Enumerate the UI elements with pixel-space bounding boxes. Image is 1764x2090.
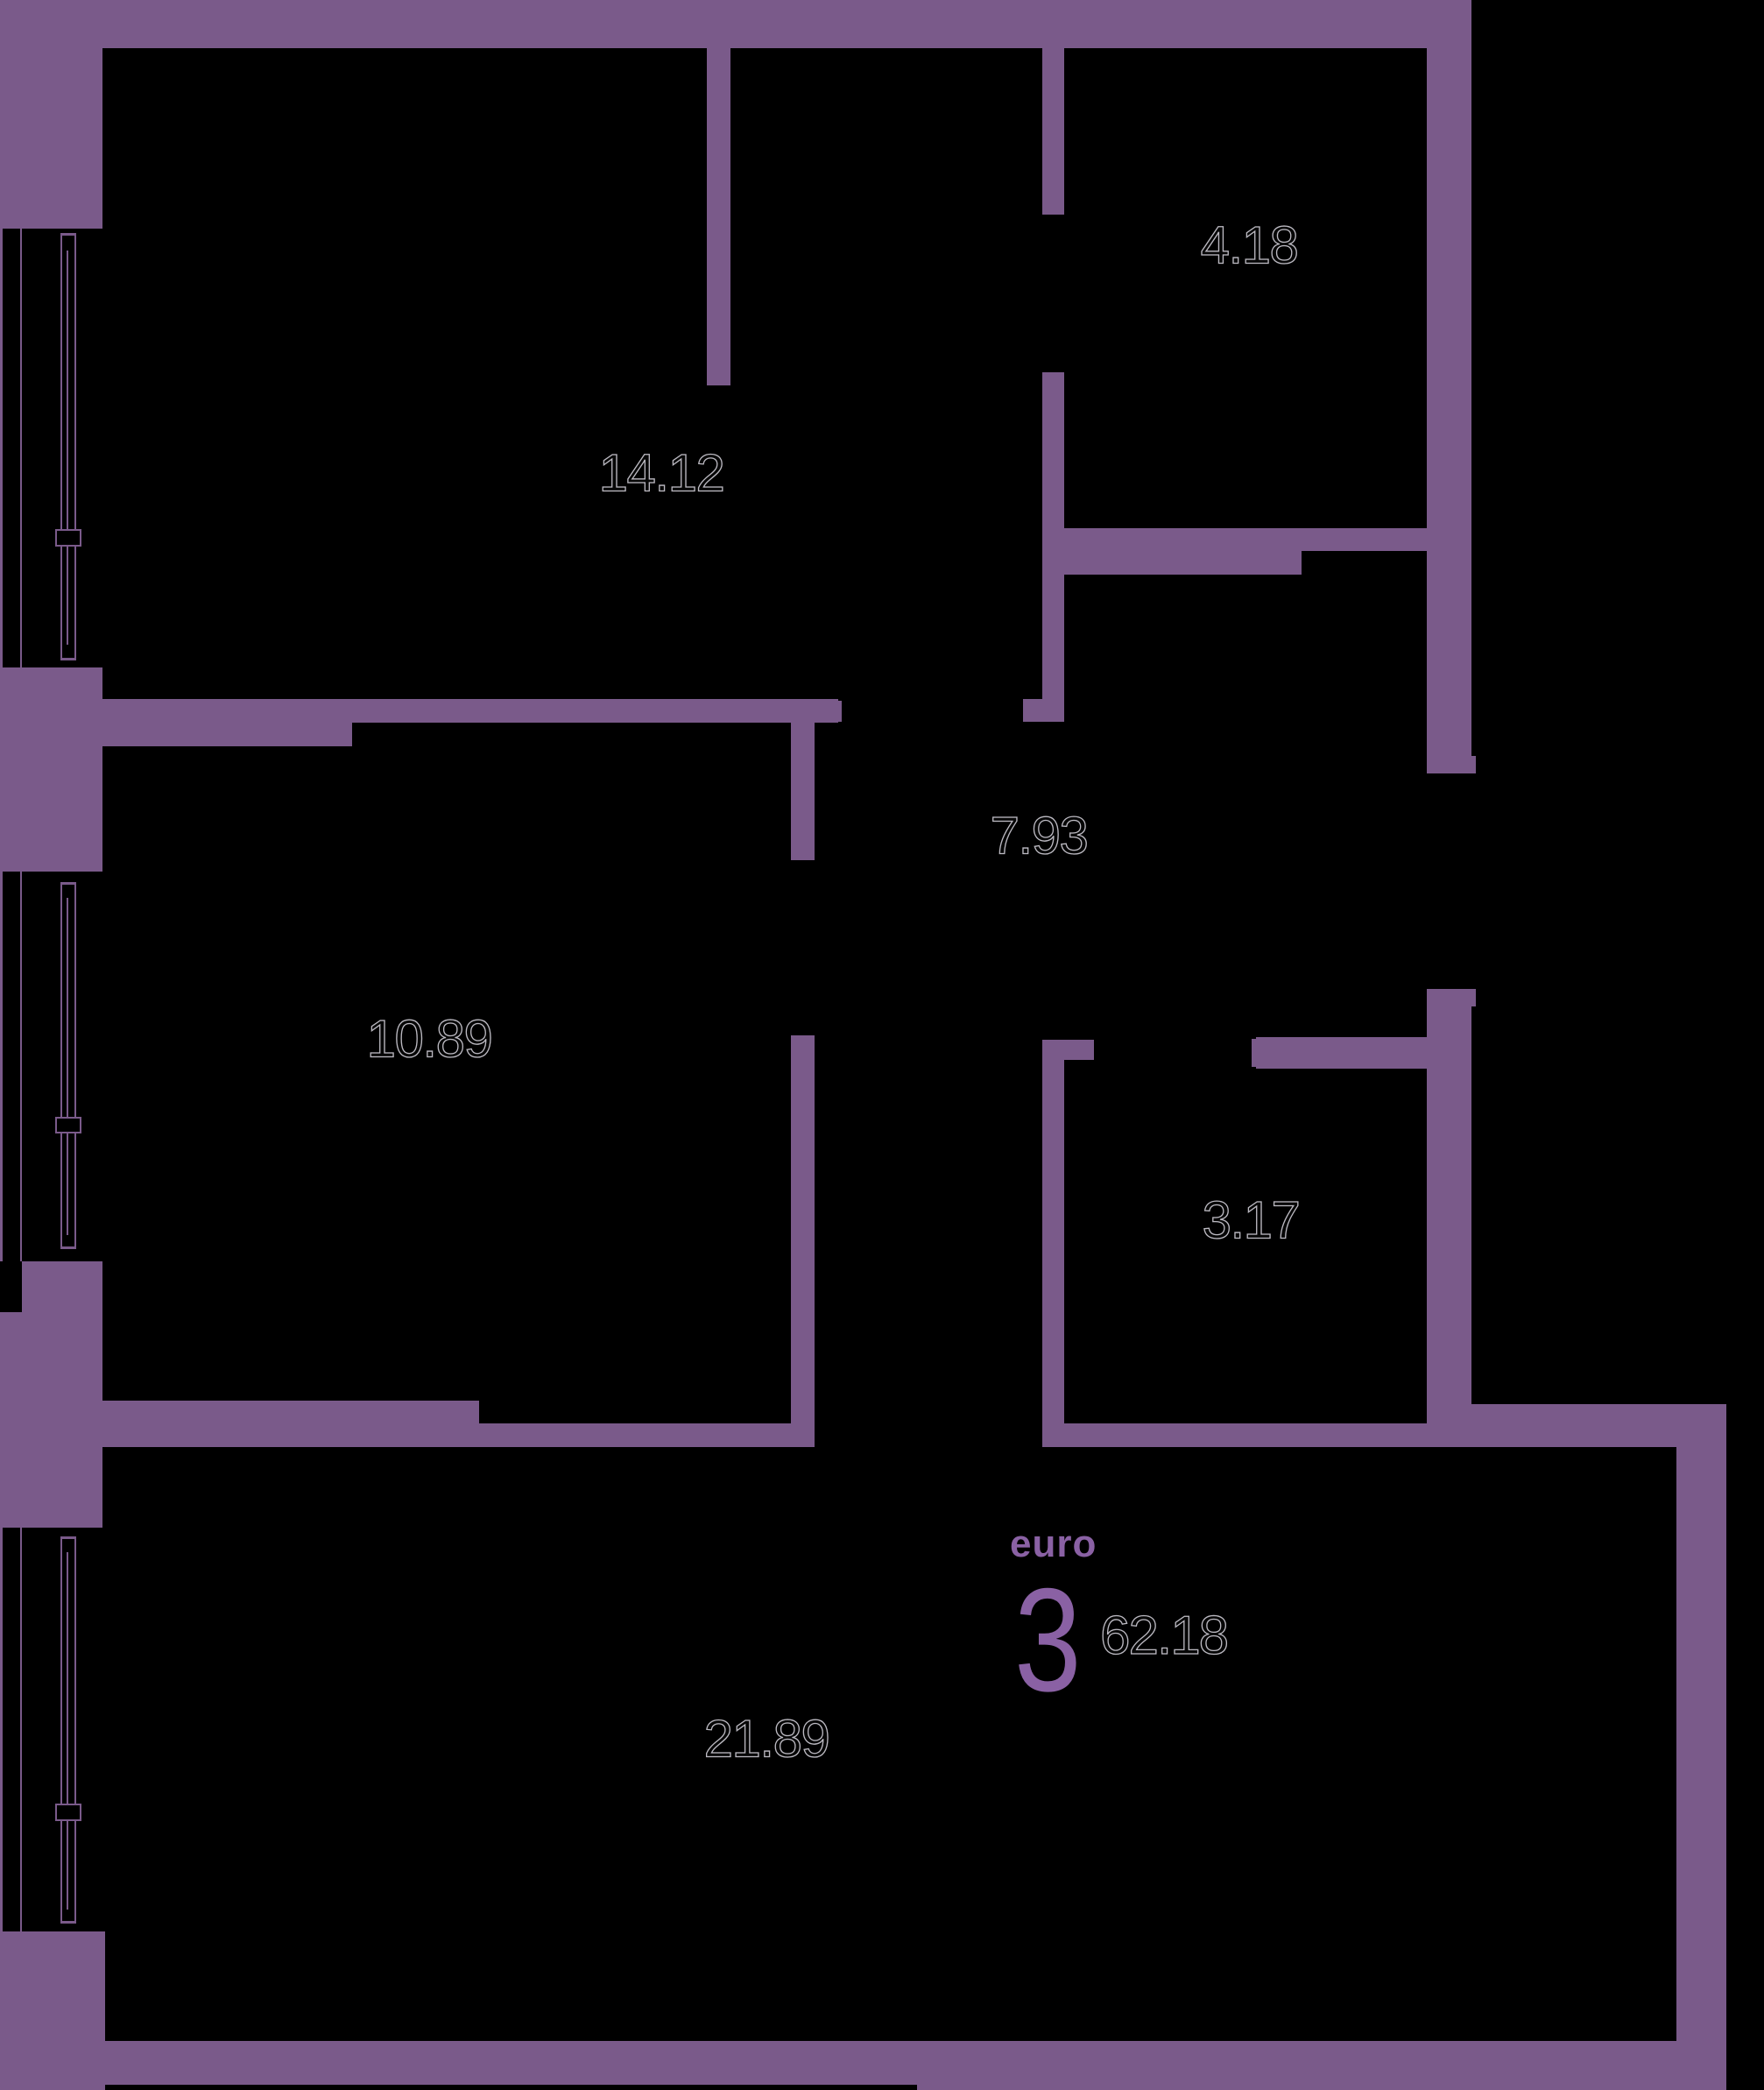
left-pier-1	[0, 0, 102, 229]
hall-opening-jamb-left	[838, 701, 842, 722]
storeroom-left-wall-lower	[1042, 377, 1064, 721]
living-right-wall	[1676, 1447, 1726, 2041]
window-1-mullion	[56, 530, 81, 546]
window-2-pane-left	[60, 884, 62, 1249]
window-3-inner-line	[20, 1528, 22, 1931]
outer-wall-bottom-right	[917, 2041, 1726, 2090]
window-1-cap-bottom	[60, 658, 76, 660]
outer-wall-right-mid	[1427, 989, 1471, 1447]
outer-wall-bottom-left	[105, 2041, 917, 2085]
window-3-mullion	[56, 1804, 81, 1820]
window-2-inner-line	[20, 872, 22, 1261]
window-2-pane-right	[74, 884, 76, 1249]
floor-plan-drawing	[0, 0, 1764, 2090]
unit-total-area: 62.18	[1100, 1605, 1227, 1667]
room-label-living-kitchen: 21.89	[704, 1709, 829, 1769]
storeroom-door-jamb-top	[1042, 210, 1064, 215]
storeroom-left-wall-upper	[1042, 48, 1064, 210]
floor-plan: 14.12 4.18 7.93 10.89 3.17 21.89 euro 3 …	[0, 0, 1764, 2090]
room-label-bedroom-top: 14.12	[599, 443, 724, 504]
outer-wall-right-upper	[1427, 0, 1471, 773]
bathroom-door-stub-left	[1064, 1040, 1094, 1060]
storeroom-door-jamb-bottom	[1042, 372, 1064, 377]
unit-rooms-count: 3	[1014, 1566, 1082, 1713]
left-pier-3-lower	[0, 1312, 102, 1528]
left-pier-4	[0, 1931, 105, 2090]
living-top-wall-right	[1471, 1404, 1726, 1447]
outer-wall-top	[0, 0, 1471, 48]
bedroom-middle-right-wall-upper	[791, 723, 815, 856]
room-label-storeroom: 4.18	[1201, 215, 1298, 276]
room-label-bathroom: 3.17	[1203, 1190, 1300, 1251]
window-3-pane-right	[74, 1538, 76, 1924]
window-3-cap-top	[60, 1536, 76, 1539]
bathroom-door-jamb-right	[1252, 1039, 1256, 1067]
window-1-pane-left	[60, 235, 62, 660]
storeroom-bottom-wall-thin	[1302, 528, 1427, 551]
room-label-bedroom-middle: 10.89	[367, 1009, 492, 1070]
bedrooms-divider-thin	[352, 699, 838, 723]
left-pier-2	[0, 667, 102, 872]
bedroom-top-right-wall	[707, 48, 730, 385]
room-label-hallway: 7.93	[991, 806, 1088, 866]
bathroom-left-wall	[1042, 1040, 1064, 1447]
living-top-wall-thick	[100, 1401, 479, 1447]
window-1-pane-right	[74, 235, 76, 660]
window-3-cap-bottom	[60, 1921, 76, 1924]
window-2-cap-top	[60, 882, 76, 885]
window-3-glass-line	[67, 1552, 68, 1910]
window-1-outer-line	[0, 229, 3, 667]
living-top-wall-mid	[479, 1423, 815, 1447]
window-1-glass-line	[67, 251, 68, 645]
window-2-cap-bottom	[60, 1246, 76, 1249]
bedroom-middle-door-jamb-bottom	[791, 1035, 815, 1040]
bathroom-top-wall	[1256, 1037, 1427, 1069]
window-3-pane-left	[60, 1538, 62, 1924]
window-1-cap-top	[60, 233, 76, 236]
window-2-outer-line	[0, 872, 3, 1261]
living-top-wall-inner-right	[1042, 1423, 1471, 1447]
storeroom-bottom-wall-thick	[1064, 528, 1302, 575]
bedroom-middle-door-jamb-top	[791, 856, 815, 860]
window-1-inner-line	[20, 229, 22, 667]
bedroom-middle-right-wall-lower	[791, 1040, 815, 1447]
window-3-outer-line	[0, 1528, 3, 1931]
left-pier-3-upper	[22, 1261, 102, 1312]
window-2-mullion	[56, 1118, 81, 1133]
entry-door-jamb-bottom	[1471, 989, 1476, 1006]
entry-door-jamb-top	[1471, 756, 1476, 773]
window-2-glass-line	[67, 898, 68, 1235]
bedrooms-divider-thick	[100, 699, 352, 746]
